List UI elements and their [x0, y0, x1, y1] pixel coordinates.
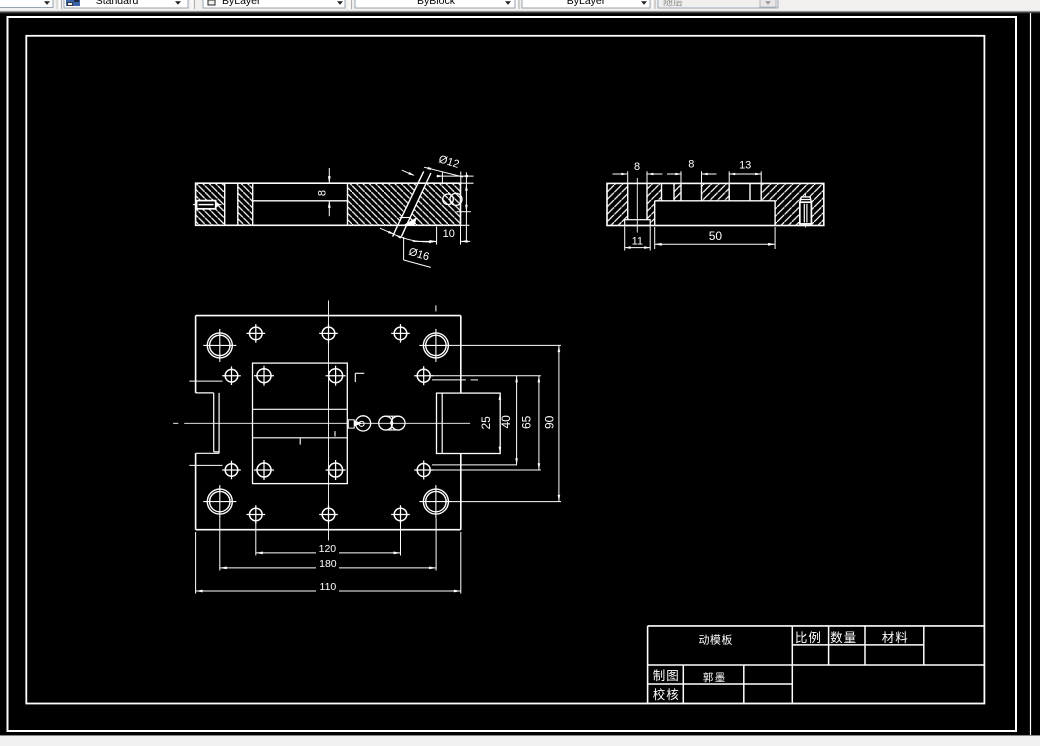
svg-text:郭墨: 郭墨: [703, 671, 727, 684]
svg-text:40: 40: [499, 415, 513, 429]
svg-text:25: 25: [479, 416, 493, 430]
svg-text:13: 13: [739, 159, 751, 171]
svg-text:8: 8: [634, 161, 640, 173]
svg-text:ByLayer: ByLayer: [222, 0, 261, 7]
svg-text:材料: 材料: [882, 631, 909, 645]
svg-text:比例: 比例: [795, 631, 822, 645]
svg-text:10: 10: [443, 228, 455, 240]
svg-text:120: 120: [319, 543, 337, 555]
svg-text:校核: 校核: [653, 687, 680, 702]
svg-text:50: 50: [709, 229, 723, 243]
svg-text:Standard: Standard: [96, 0, 139, 7]
svg-text:8: 8: [317, 190, 329, 196]
svg-text:65: 65: [520, 415, 534, 429]
svg-text:动模板: 动模板: [698, 633, 733, 647]
svg-text:8: 8: [688, 159, 694, 171]
svg-text:ByBlock: ByBlock: [417, 0, 456, 7]
svg-text:数量: 数量: [830, 630, 857, 645]
svg-text:90: 90: [543, 415, 557, 429]
svg-text:ByLayer: ByLayer: [567, 0, 606, 7]
svg-text:180: 180: [319, 558, 337, 570]
svg-text:制图: 制图: [653, 669, 680, 683]
svg-text:110: 110: [320, 581, 337, 593]
svg-text:11: 11: [632, 236, 643, 248]
svg-text:随层: 随层: [663, 0, 683, 9]
